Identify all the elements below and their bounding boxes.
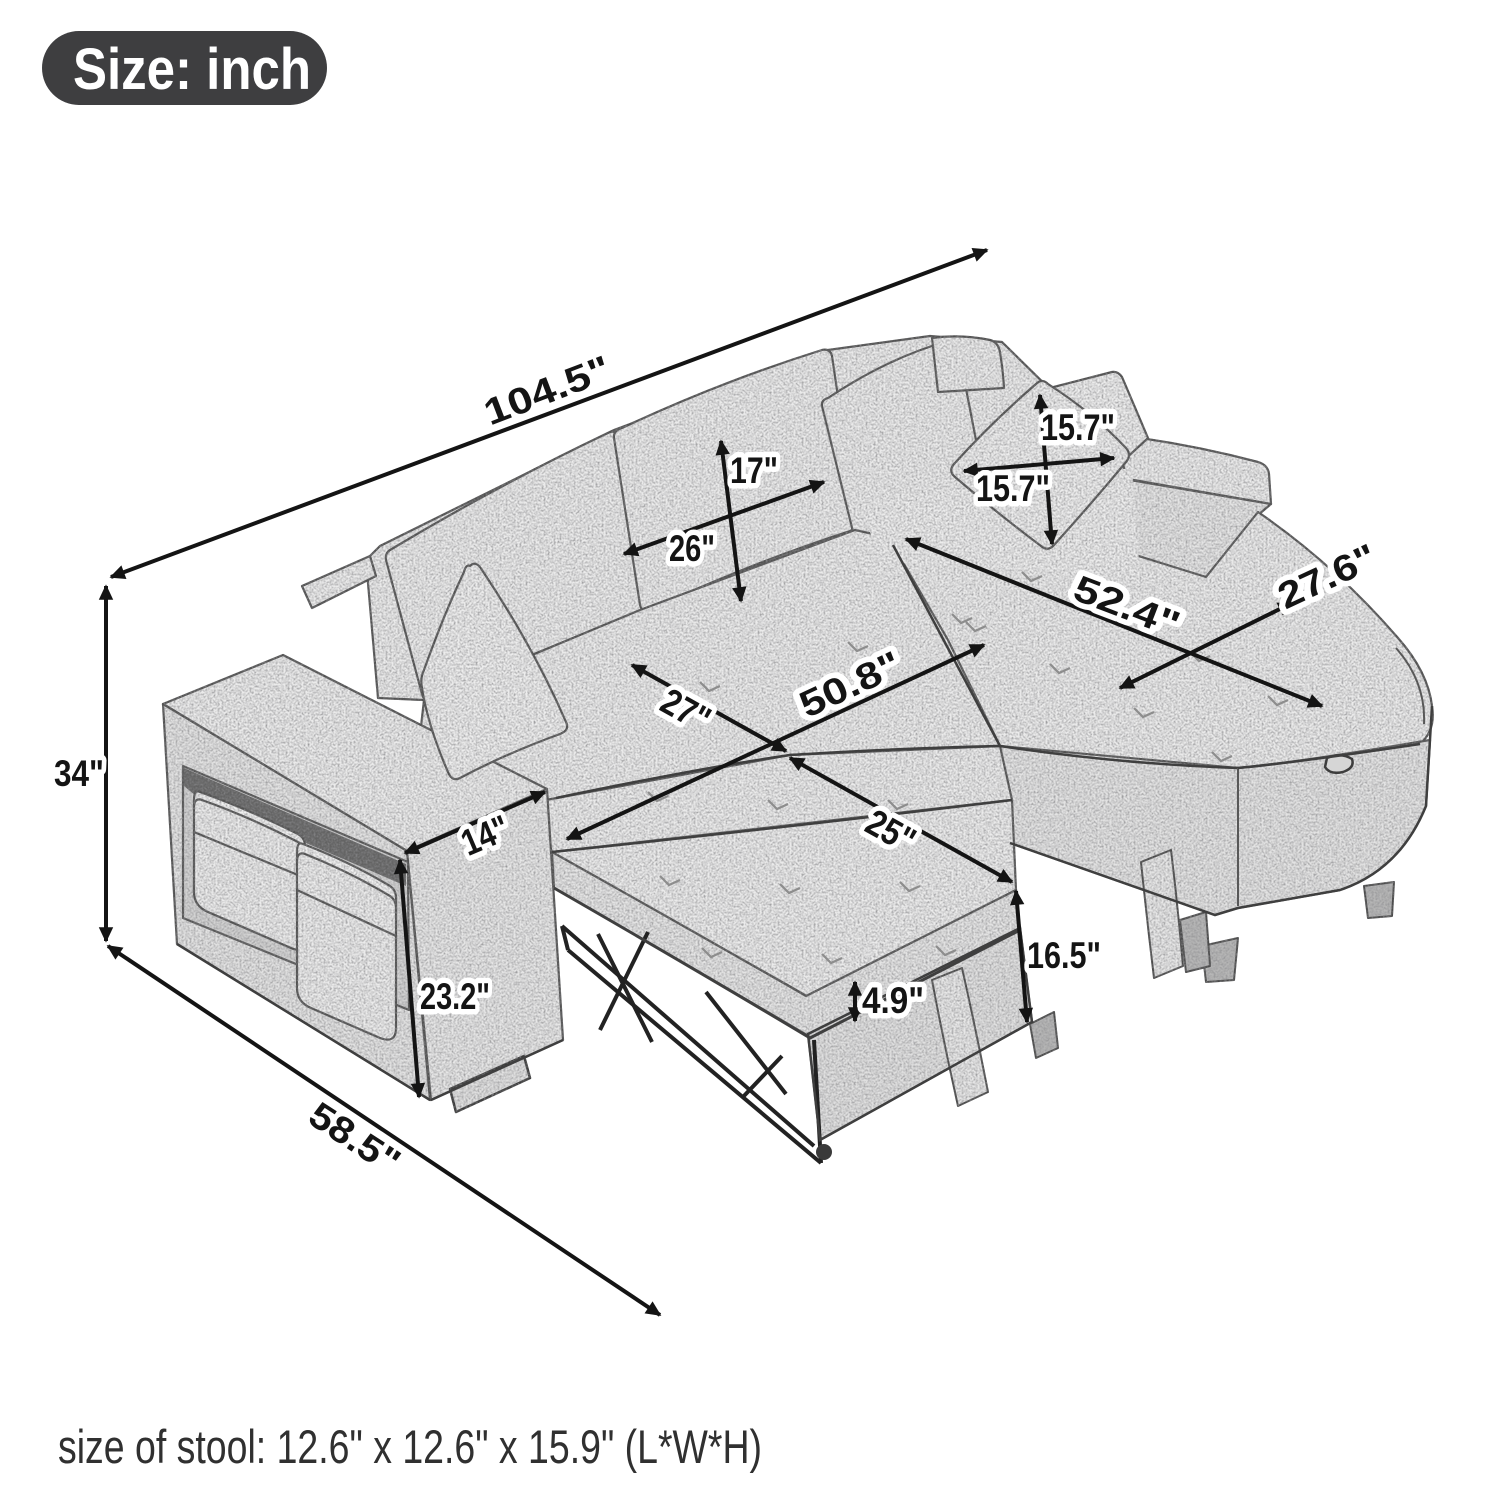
svg-text:34": 34": [54, 753, 104, 794]
svg-text:16.5": 16.5": [1027, 935, 1101, 976]
svg-text:size of stool: 12.6" x 12.6" x: size of stool: 12.6" x 12.6" x 15.9" (L*…: [58, 1420, 762, 1473]
svg-text:23.2": 23.2": [420, 976, 490, 1017]
svg-text:4.9": 4.9": [862, 980, 924, 1021]
svg-text:Size: inch: Size: inch: [73, 37, 311, 102]
svg-text:15.7": 15.7": [976, 468, 1050, 509]
svg-text:17": 17": [730, 450, 778, 491]
svg-text:26": 26": [669, 528, 715, 569]
svg-text:15.7": 15.7": [1041, 407, 1115, 448]
